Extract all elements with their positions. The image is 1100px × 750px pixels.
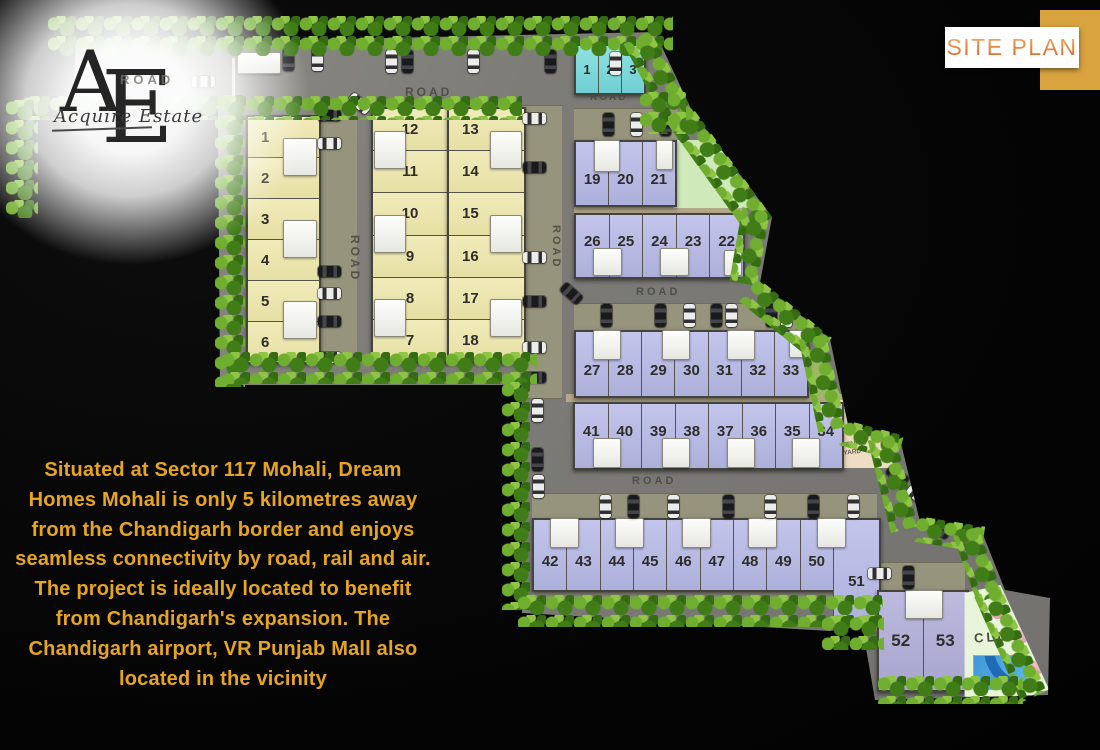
car-icon: [318, 266, 341, 277]
car-icon: [523, 113, 546, 124]
plot-number: 33: [783, 362, 800, 379]
plot-number: 3: [261, 211, 269, 228]
plot-number: 1: [583, 62, 590, 77]
green-lawn-area: [673, 140, 757, 208]
car-icon: [905, 484, 930, 507]
road-label: ROAD: [632, 475, 676, 487]
plot-number: 13: [462, 121, 479, 138]
garage-structure: [662, 438, 690, 468]
garage-structure: [490, 131, 522, 169]
plot-number: 45: [642, 553, 659, 570]
plot-number: 21: [650, 171, 667, 188]
plot-number: 18: [462, 332, 479, 349]
garage-structure: [490, 215, 522, 253]
garage-structure: [593, 330, 621, 360]
car-icon: [283, 48, 294, 71]
garage-structure: [656, 140, 673, 170]
plot-number: 32: [749, 362, 766, 379]
plot-number: 24: [651, 233, 668, 250]
garage-structure: [748, 518, 777, 548]
car-icon: [402, 50, 413, 73]
car-icon: [631, 113, 642, 136]
plot-number: 9: [406, 248, 414, 265]
plot-number: 46: [675, 553, 692, 570]
car-icon: [523, 162, 546, 173]
car-icon: [468, 50, 479, 73]
plot-number: 50: [808, 553, 825, 570]
plot-number: 16: [462, 248, 479, 265]
car-icon: [318, 352, 341, 363]
car-icon: [318, 288, 341, 299]
plot-number: 47: [708, 553, 725, 570]
plot-number: 15: [462, 205, 479, 222]
logo-script-text: Acquire Estate: [54, 106, 203, 127]
plot-number: 31: [716, 362, 733, 379]
plot-number: 44: [608, 553, 625, 570]
garage-structure: [490, 299, 522, 337]
plot-number: 3: [629, 62, 636, 77]
road-label: ROAD: [120, 72, 174, 87]
plot-number: 36: [750, 423, 767, 440]
car-icon: [601, 304, 612, 327]
car-icon: [318, 110, 341, 121]
plot-number: 40: [616, 423, 633, 440]
plot-number: 25: [618, 233, 635, 250]
car-icon: [523, 372, 546, 383]
garage-structure: [905, 590, 943, 619]
site-plan-page: TENNIS YARD CLUB 123 123456 121110987 13…: [0, 0, 1100, 750]
flower-bush-icon: [990, 605, 1006, 619]
garage-structure: [593, 438, 621, 468]
parking-strip: [532, 493, 877, 521]
plot-number: 4: [261, 252, 269, 269]
car-icon: [545, 50, 556, 73]
flower-bush-icon: [1030, 660, 1045, 674]
plot-number: 1: [261, 129, 269, 146]
car-icon: [312, 48, 323, 71]
plot-number: 30: [683, 362, 700, 379]
garage-structure: [792, 438, 820, 468]
car-icon: [726, 304, 737, 327]
garage-structure: [660, 248, 689, 276]
car-icon: [668, 495, 679, 518]
road-label: ROAD: [550, 225, 562, 269]
tennis-yard-area: TENNIS YARD: [838, 400, 898, 468]
garage-structure: [615, 518, 644, 548]
road-label: ROAD: [348, 235, 362, 282]
garage-structure: [724, 250, 742, 276]
plot-number: 26: [584, 233, 601, 250]
car-icon: [532, 448, 543, 471]
plot-number: 34: [817, 423, 834, 440]
car-icon: [868, 568, 891, 579]
acquire-estate-logo: A E Acquire Estate: [0, 0, 260, 230]
car-icon: [655, 304, 666, 327]
road-label: ROAD: [636, 286, 680, 298]
garage-structure: [727, 330, 755, 360]
car-icon: [723, 495, 734, 518]
garage-structure: [374, 299, 406, 337]
plot-number: 28: [617, 362, 634, 379]
car-icon: [684, 304, 695, 327]
plot-number: 6: [261, 334, 269, 351]
plot-number: 8: [406, 290, 414, 307]
road-label: ROAD: [590, 92, 627, 103]
plot-3: 3: [621, 46, 644, 93]
garage-structure: [727, 438, 755, 468]
flower-bush-icon: [1015, 630, 1029, 643]
car-icon: [532, 399, 543, 422]
plot-number: 20: [617, 171, 634, 188]
garage-structure: [594, 140, 620, 172]
car-icon: [711, 304, 722, 327]
plot-number: 35: [784, 423, 801, 440]
plot-number: 49: [775, 553, 792, 570]
plot-number: 37: [717, 423, 734, 440]
car-icon: [660, 113, 671, 136]
plot-number: 43: [575, 553, 592, 570]
car-icon: [523, 296, 546, 307]
car-icon: [600, 495, 611, 518]
plot-number: 38: [683, 423, 700, 440]
car-icon: [808, 495, 819, 518]
garage-structure: [374, 131, 406, 169]
car-icon: [766, 304, 777, 327]
car-icon: [386, 50, 397, 73]
plot-number: 27: [584, 362, 601, 379]
garage-structure: [550, 518, 579, 548]
plot-number: 17: [462, 290, 479, 307]
plot-number: 7: [406, 332, 414, 349]
green-lawn-area: [808, 352, 842, 398]
project-description: Situated at Sector 117 Mohali, Dream Hom…: [2, 456, 444, 694]
plot-number: 29: [650, 362, 667, 379]
garage-structure: [682, 518, 711, 548]
plot-number: 19: [584, 171, 601, 188]
car-icon: [559, 282, 583, 306]
car-icon: [848, 495, 859, 518]
garage-structure: [283, 220, 317, 258]
car-icon: [533, 475, 544, 498]
car-icon: [610, 52, 621, 75]
plot-number: 2: [261, 170, 269, 187]
tennis-yard-label: TENNIS YARD: [842, 438, 877, 457]
plot-number: 5: [261, 293, 269, 310]
car-icon: [523, 342, 546, 353]
plot-number: 39: [650, 423, 667, 440]
car-icon: [927, 517, 952, 540]
plot-number: 42: [542, 553, 559, 570]
plot-number: 14: [462, 163, 479, 180]
car-icon: [318, 138, 341, 149]
swimming-pool: [973, 655, 1027, 690]
plot-number: 48: [742, 553, 759, 570]
club-area: CLUB: [960, 585, 1052, 700]
car-icon: [603, 113, 614, 136]
car-icon: [628, 495, 639, 518]
garage-structure: [283, 138, 317, 176]
plot-number: 22: [718, 233, 735, 250]
car-icon: [318, 316, 341, 327]
garage-structure: [374, 215, 406, 253]
plot-number: 53: [936, 631, 955, 651]
garage-structure: [662, 330, 690, 360]
car-icon: [903, 566, 914, 589]
car-icon: [523, 252, 546, 263]
garage-structure: [593, 248, 622, 276]
plot-number: 23: [685, 233, 702, 250]
garage-structure: [789, 330, 805, 358]
plot-number: 41: [583, 423, 600, 440]
plot-1: 1: [576, 46, 598, 93]
garage-structure: [283, 301, 317, 339]
plot-number: 52: [891, 631, 910, 651]
garage-structure: [817, 518, 846, 548]
car-icon: [765, 495, 776, 518]
road-label: ROAD: [405, 85, 452, 99]
car-icon: [781, 304, 792, 327]
site-plan-badge: SITE PLAN: [945, 27, 1079, 68]
site-plan-title: SITE PLAN: [946, 34, 1077, 61]
plot-number: 51: [848, 573, 865, 590]
